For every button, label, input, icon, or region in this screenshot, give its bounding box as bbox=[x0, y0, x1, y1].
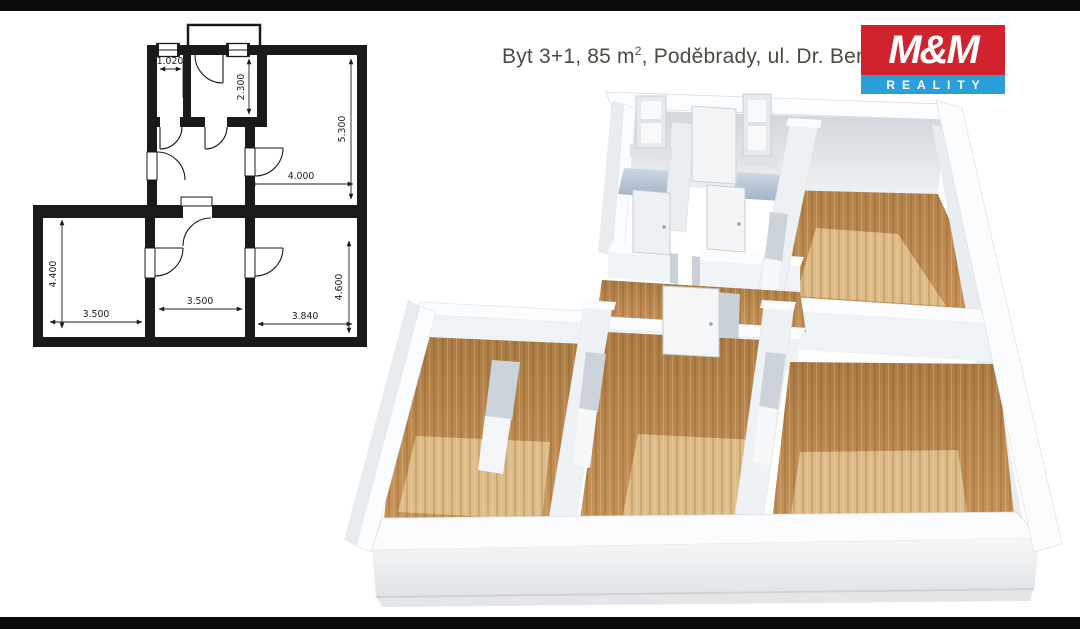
window-icon bbox=[226, 44, 250, 57]
floorplan-2d: 1.020 2.300 5.300 4.000 4.400 3.500 3.50… bbox=[33, 25, 367, 347]
title-superscript: 2 bbox=[635, 44, 642, 58]
bottom-black-bar bbox=[0, 617, 1080, 629]
window-icon bbox=[156, 44, 180, 57]
dim-room-c-height: 4.400 bbox=[48, 261, 59, 288]
mm-reality-logo: M&M REALITY bbox=[861, 25, 1005, 94]
front-outer-wall-3d bbox=[372, 512, 1040, 607]
dim-living-width: 4.000 bbox=[288, 171, 315, 182]
door-panel-middle-room bbox=[663, 286, 719, 357]
window-frame-1 bbox=[630, 96, 672, 160]
top-black-bar bbox=[0, 0, 1080, 11]
logo-reality-label: REALITY bbox=[861, 75, 1005, 94]
dimension-lines-2d bbox=[50, 59, 353, 333]
screenshot-canvas: 1.020 2.300 5.300 4.000 4.400 3.500 3.50… bbox=[0, 0, 1080, 629]
dim-room-d-width: 3.500 bbox=[187, 296, 214, 307]
dim-room-b-height: 2.300 bbox=[236, 74, 247, 101]
dim-room-e-height: 4.600 bbox=[334, 274, 345, 301]
door-panel-bathroom bbox=[633, 190, 670, 255]
page-title: Byt 3+1, 85 m2, Poděbrady, ul. Dr. Beneš… bbox=[502, 44, 902, 69]
scene: 1.020 2.300 5.300 4.000 4.400 3.500 3.50… bbox=[0, 0, 1080, 629]
floorplan-3d bbox=[344, 92, 1062, 607]
logo-mm-mark: M&M bbox=[861, 25, 1005, 75]
title-text: Byt 3+1, 85 m bbox=[502, 45, 635, 68]
dim-room-c-width: 3.500 bbox=[83, 309, 110, 320]
door-panel-wc bbox=[707, 185, 745, 252]
door-panel-tall bbox=[692, 106, 736, 184]
dim-room-a-width: 1.020 bbox=[157, 56, 184, 67]
dim-living-height: 5.300 bbox=[337, 116, 348, 143]
dim-room-e-width: 3.840 bbox=[292, 311, 319, 322]
